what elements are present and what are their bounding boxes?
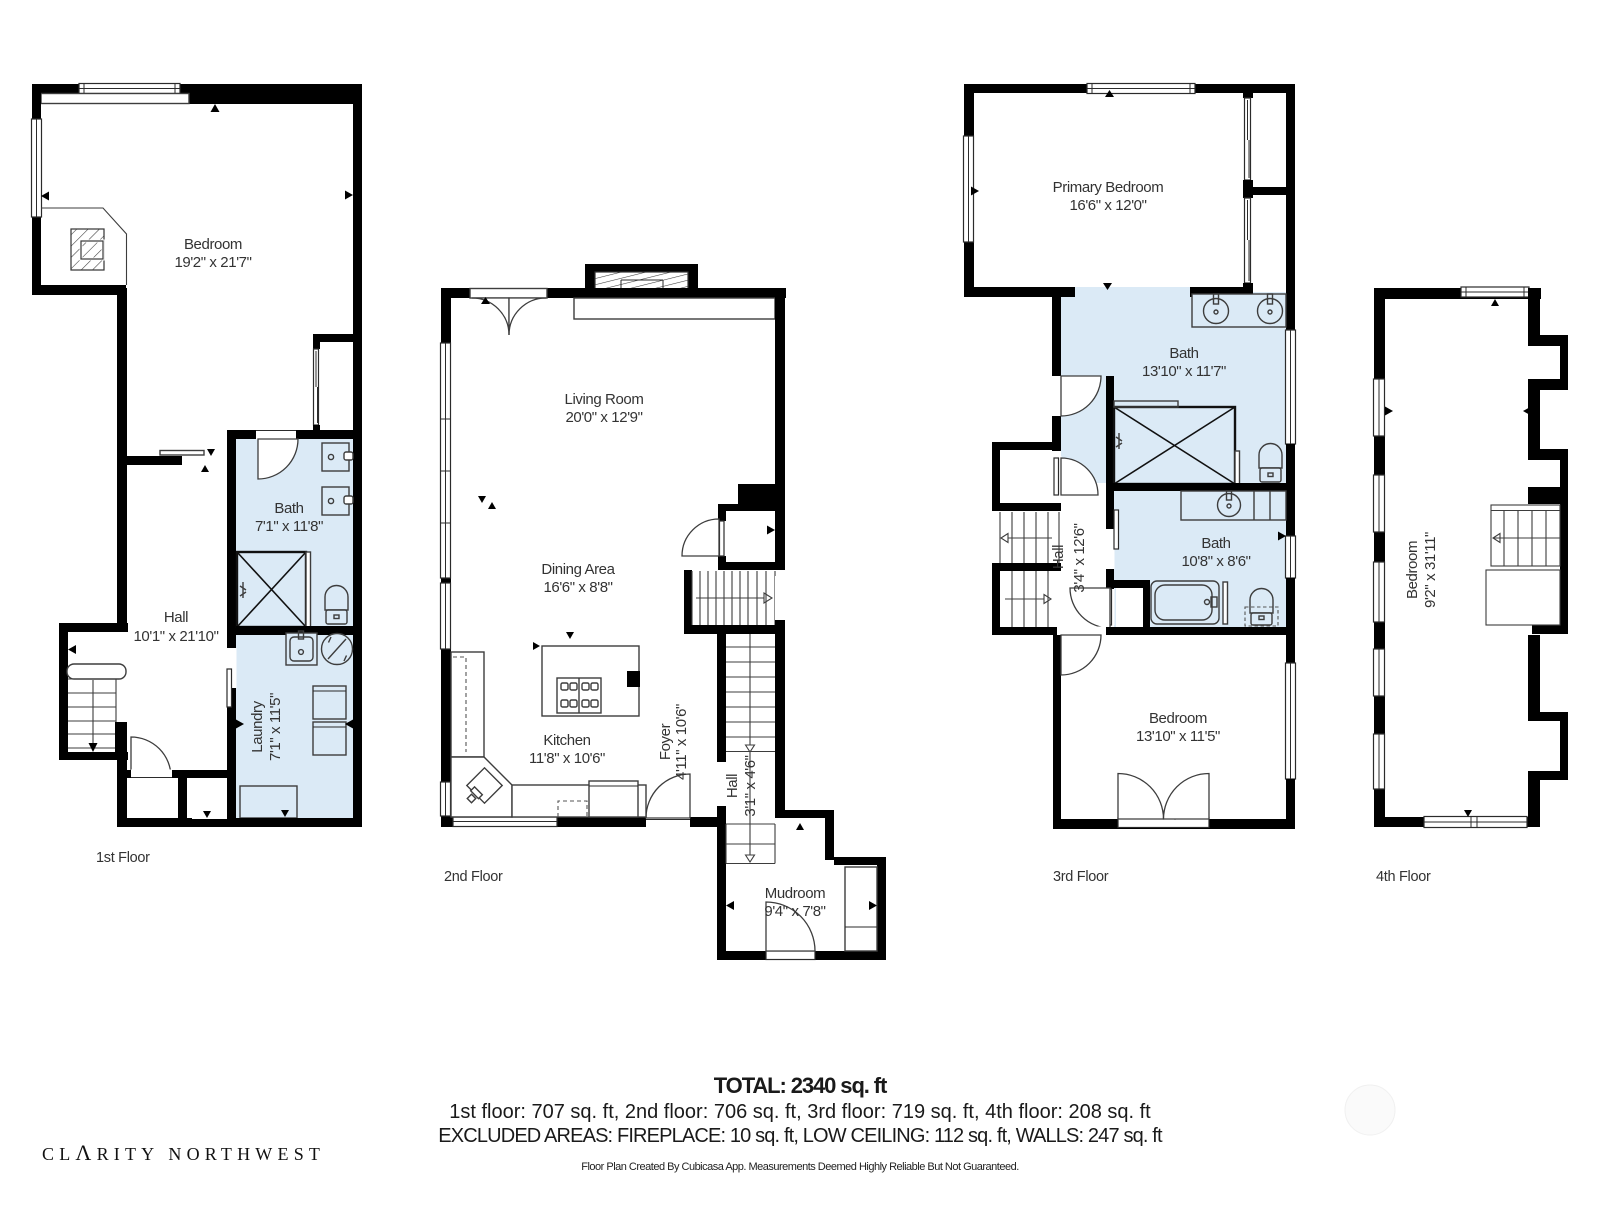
svg-text:10'8" x 8'6": 10'8" x 8'6"	[1181, 553, 1250, 570]
svg-text:4th Floor: 4th Floor	[1376, 869, 1431, 885]
svg-text:1st Floor: 1st Floor	[96, 850, 150, 866]
svg-text:EXCLUDED AREAS: FIREPLACE: 10: EXCLUDED AREAS: FIREPLACE: 10 sq. ft, LO…	[438, 1125, 1163, 1147]
svg-text:19'2" x 21'7": 19'2" x 21'7"	[174, 254, 251, 271]
svg-text:3'1" x 4'6": 3'1" x 4'6"	[742, 755, 759, 816]
svg-text:Kitchen: Kitchen	[543, 732, 590, 749]
svg-text:9'2" x 31'11": 9'2" x 31'11"	[1422, 532, 1439, 608]
svg-text:CLΛRITY NORTHWEST: CLΛRITY NORTHWEST	[42, 1140, 325, 1165]
svg-text:Bath: Bath	[1169, 345, 1198, 362]
svg-text:Bath: Bath	[1201, 535, 1230, 552]
svg-text:3'4" x 12'6": 3'4" x 12'6"	[1071, 523, 1088, 592]
svg-text:Bedroom: Bedroom	[184, 236, 242, 253]
svg-text:16'6" x 12'0": 16'6" x 12'0"	[1069, 197, 1146, 214]
svg-text:Bedroom: Bedroom	[1149, 710, 1207, 727]
svg-text:Dining Area: Dining Area	[541, 561, 615, 578]
svg-text:1st floor: 707 sq. ft, 2nd flo: 1st floor: 707 sq. ft, 2nd floor: 706 sq…	[449, 1101, 1151, 1123]
svg-text:7'1" x 11'5": 7'1" x 11'5"	[267, 693, 284, 761]
svg-text:Living Room: Living Room	[565, 391, 644, 408]
svg-text:Bedroom: Bedroom	[1404, 541, 1421, 599]
svg-text:13'10" x 11'5": 13'10" x 11'5"	[1136, 728, 1220, 745]
svg-text:Laundry: Laundry	[249, 700, 266, 752]
svg-text:TOTAL: 2340 sq. ft: TOTAL: 2340 sq. ft	[714, 1073, 888, 1098]
svg-text:9'4" x 7'8": 9'4" x 7'8"	[764, 903, 825, 920]
svg-text:Primary Bedroom: Primary Bedroom	[1053, 179, 1164, 196]
svg-text:Floor Plan Created By Cubicasa: Floor Plan Created By Cubicasa App. Meas…	[581, 1161, 1019, 1173]
svg-text:Foyer: Foyer	[657, 723, 674, 760]
svg-text:16'6" x 8'8": 16'6" x 8'8"	[543, 579, 612, 596]
svg-text:2nd Floor: 2nd Floor	[444, 869, 503, 885]
svg-text:13'10" x 11'7": 13'10" x 11'7"	[1142, 363, 1226, 380]
svg-text:7'1" x 11'8": 7'1" x 11'8"	[255, 518, 323, 535]
svg-text:Bath: Bath	[274, 500, 303, 517]
svg-text:Mudroom: Mudroom	[765, 885, 826, 902]
svg-text:Hall: Hall	[164, 609, 188, 626]
svg-text:4'11" x 10'6": 4'11" x 10'6"	[673, 704, 690, 780]
svg-text:Hall: Hall	[1050, 545, 1067, 569]
svg-text:10'1" x 21'10": 10'1" x 21'10"	[133, 628, 218, 645]
svg-text:3rd Floor: 3rd Floor	[1053, 869, 1109, 885]
svg-text:20'0" x 12'9": 20'0" x 12'9"	[565, 409, 642, 426]
svg-text:Hall: Hall	[724, 774, 741, 798]
svg-text:11'8" x 10'6": 11'8" x 10'6"	[529, 750, 605, 767]
